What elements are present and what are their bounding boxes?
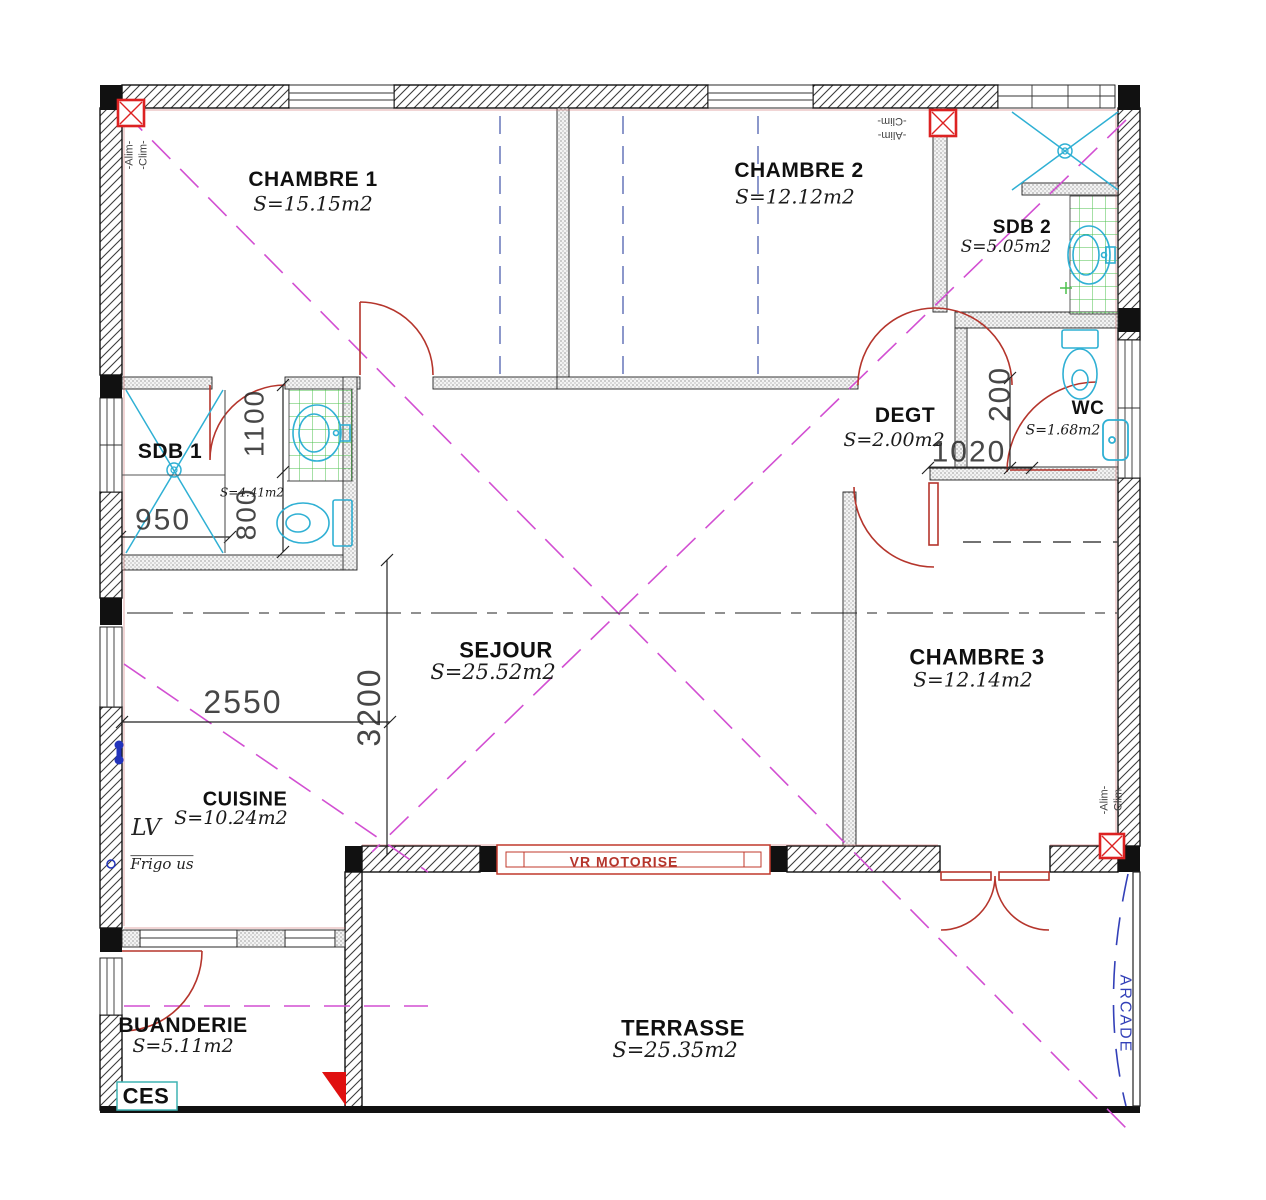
wall-chambre2-bottom [557, 377, 858, 389]
alim-clim-tag-chambre2: -Alim- -Clim- [877, 113, 906, 141]
window-chambre1-top [289, 85, 394, 108]
room-label-sejour: SEJOUR [459, 638, 552, 661]
dim-1020: 1020 [932, 436, 1007, 468]
door-chambre2 [858, 308, 935, 385]
window-buanderie-left [100, 958, 122, 1015]
window-buanderie-top-2 [285, 930, 335, 947]
room-area-sejour: S=25.52m2 [430, 661, 555, 683]
dim-1100: 1100 [239, 389, 268, 457]
toilet-wc-icon [1062, 330, 1098, 399]
terrace-bottom-edge [100, 1106, 1140, 1113]
tile2-area [1070, 196, 1118, 314]
ces-label: CES [123, 1084, 170, 1107]
window-wc-right [1118, 340, 1140, 478]
room-label-sdb1: SDB 1 [138, 441, 202, 463]
window-sdb1-left [100, 398, 122, 492]
wall-wc-bottom [930, 467, 1118, 480]
lave-vaisselle-label: LV [131, 816, 160, 840]
door-chambre1 [360, 302, 433, 375]
alim-text: -Alim- [123, 140, 137, 169]
room-area-buanderie: S=5.11m2 [132, 1037, 233, 1057]
door-terrasse-double [941, 872, 1049, 930]
room-area-terrasse: S=25.35m2 [612, 1039, 737, 1061]
room-area-degt: S=2.00m2 [843, 431, 944, 451]
dim-950: 950 [135, 504, 191, 536]
room-label-chambre3: CHAMBRE 3 [909, 645, 1044, 668]
shower2-curb [1022, 183, 1118, 195]
alim-clim-tag-chambre1: -Alim- -Clim- [123, 140, 151, 169]
clim-text: -Clim- [137, 140, 151, 169]
dim-2550: 2550 [203, 686, 282, 720]
room-label-sdb2: SDB 2 [993, 218, 1051, 238]
room-area-chambre1: S=15.15m2 [253, 194, 372, 215]
frigo-label: Frigo us [130, 855, 193, 873]
alim-text: -Alim- [877, 127, 906, 141]
clim-text: -Clim- [877, 113, 906, 127]
window-chambre2-top [708, 85, 813, 108]
room-label-terrasse: TERRASSE [621, 1016, 745, 1039]
room-area-chambre3: S=12.14m2 [913, 670, 1032, 691]
toilet1-icon [277, 500, 352, 546]
room-label-degt: DEGT [875, 405, 935, 427]
clim-text: -Clim- [1112, 785, 1126, 814]
windows [100, 85, 1140, 1015]
dim-3200: 3200 [353, 667, 387, 746]
room-label-chambre2: CHAMBRE 2 [734, 160, 863, 182]
room-area-sdb2: S=5.05m2 [961, 239, 1052, 257]
terrace-right-edge [1133, 872, 1140, 1106]
room-area-cuisine: S=10.24m2 [174, 809, 287, 829]
arcade-label: ARCADE [1116, 975, 1133, 1054]
wall-chambre2-sdb2 [933, 108, 947, 312]
diagonal-guides [124, 112, 1126, 1128]
window-sdb2-top [998, 85, 1115, 108]
window-cuisine-left [100, 627, 122, 707]
vr-motorise-label: VR MOTORISE [570, 855, 679, 870]
door-chambre3 [854, 483, 938, 567]
room-label-buanderie: BUANDERIE [118, 1015, 247, 1037]
clim-box-chambre1 [118, 100, 144, 126]
clim-box-chambre2 [930, 110, 956, 136]
dim-800: 800 [231, 488, 260, 541]
north-triangle-marker [322, 1072, 346, 1106]
alim-clim-tag-chambre3: -Alim- -Clim- [1098, 785, 1126, 814]
wall-chambre1-chambre2 [557, 108, 569, 377]
window-buanderie-top-1 [140, 930, 237, 947]
wall-sdb1-bottom [122, 555, 343, 570]
dim-200: 200 [984, 366, 1016, 422]
room-label-chambre1: CHAMBRE 1 [248, 169, 377, 191]
wall-sejour-chambre3 [843, 492, 856, 846]
room-area-chambre2: S=12.12m2 [735, 187, 854, 208]
room-area-wc: S=1.68m2 [1026, 424, 1101, 439]
floorplan-canvas: CHAMBRE 1 S=15.15m2 CHAMBRE 2 S=12.12m2 … [0, 0, 1266, 1200]
alim-text: -Alim- [1098, 785, 1112, 814]
clim-box-chambre3 [1100, 834, 1124, 858]
room-label-wc: WC [1072, 399, 1105, 419]
